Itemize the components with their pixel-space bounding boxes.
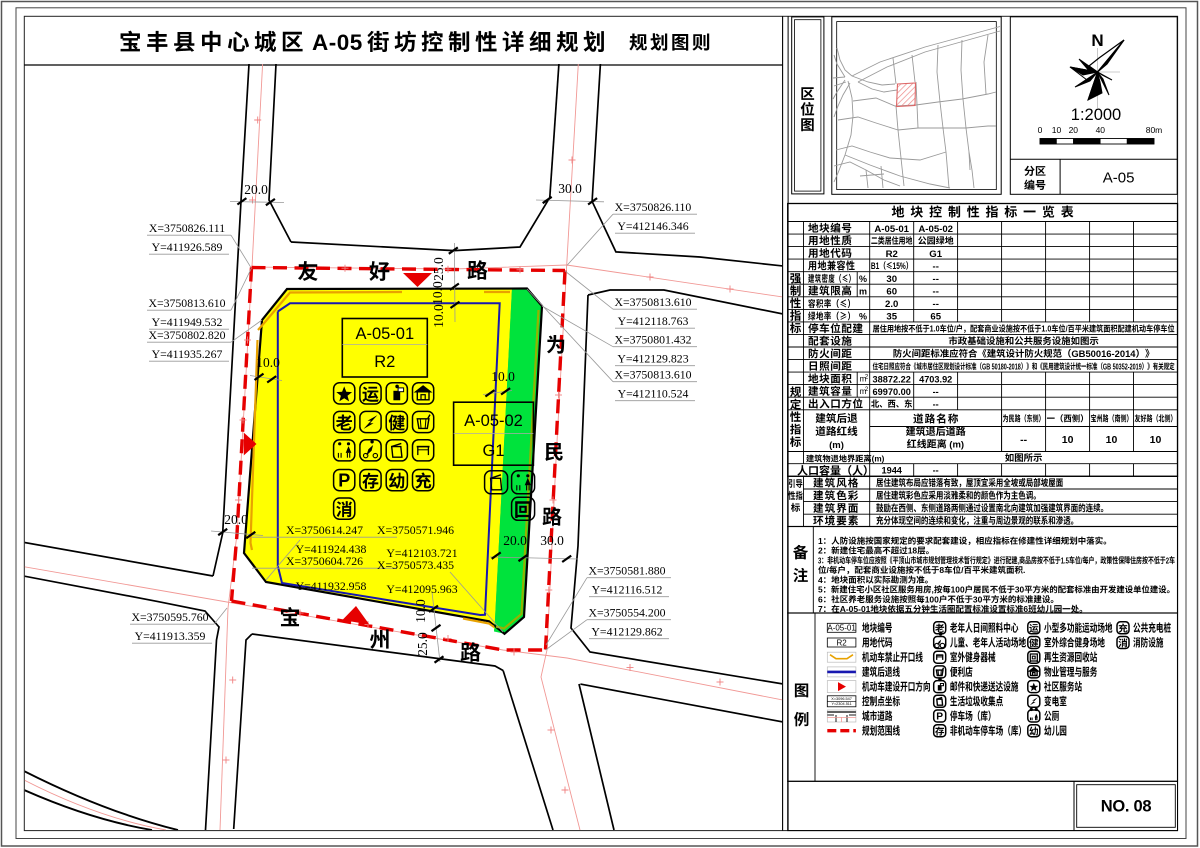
- svg-text:Y=412146.346: Y=412146.346: [617, 219, 688, 233]
- svg-text:20.0: 20.0: [244, 182, 268, 197]
- svg-text:P: P: [338, 471, 350, 491]
- svg-text:2: 2: [1166, 555, 1169, 565]
- svg-text:1:2000: 1:2000: [1071, 106, 1121, 124]
- svg-text:Y=2304.511: Y=2304.511: [831, 702, 851, 706]
- svg-text:25.0: 25.0: [415, 632, 430, 656]
- svg-text:R2: R2: [836, 638, 847, 647]
- svg-text:%: %: [859, 312, 867, 322]
- svg-text:--: --: [933, 466, 939, 476]
- svg-text:(m): (m): [949, 440, 964, 451]
- svg-text:Y=412116.512: Y=412116.512: [592, 583, 663, 597]
- svg-text:X=3750801.432: X=3750801.432: [614, 333, 691, 347]
- svg-text:X=3750813.610: X=3750813.610: [614, 295, 691, 309]
- svg-text:5: 5: [818, 584, 823, 594]
- svg-text:.: .: [1023, 565, 1025, 575]
- svg-text:X=3750802.820: X=3750802.820: [148, 328, 225, 342]
- svg-text:69970.00: 69970.00: [873, 387, 911, 397]
- svg-text:Y=411932.958: Y=411932.958: [296, 579, 367, 593]
- svg-text:10.0: 10.0: [256, 355, 280, 370]
- svg-text:G1: G1: [929, 249, 942, 260]
- svg-text:20: 20: [1069, 125, 1079, 135]
- svg-text:30: 30: [886, 274, 897, 285]
- svg-text:1.0: 1.0: [1041, 324, 1051, 334]
- svg-text:B1: B1: [871, 261, 880, 271]
- svg-text:(m): (m): [872, 455, 885, 464]
- svg-text:25.0: 25.0: [431, 257, 446, 281]
- svg-text:2.0: 2.0: [885, 299, 898, 310]
- svg-text:10.0: 10.0: [431, 304, 446, 328]
- svg-text:40: 40: [1096, 125, 1106, 135]
- svg-text:A-05-01: A-05-01: [874, 224, 909, 235]
- svg-text:--: --: [933, 274, 939, 285]
- svg-text:A-05-02: A-05-02: [464, 412, 523, 430]
- svg-text:30: 30: [1015, 584, 1025, 594]
- svg-text:A-05-02: A-05-02: [918, 224, 953, 235]
- svg-text:A-05-01: A-05-01: [827, 624, 856, 633]
- svg-text:/: /: [1081, 555, 1083, 565]
- svg-text:38872.22: 38872.22: [873, 374, 911, 384]
- svg-text:1: 1: [818, 536, 823, 546]
- svg-text:1944: 1944: [881, 466, 902, 476]
- svg-text:Y=411935.267: Y=411935.267: [152, 347, 223, 361]
- svg-text:X=3750571.946: X=3750571.946: [377, 523, 454, 537]
- svg-text:2: 2: [818, 546, 823, 556]
- svg-text:X=3750826.111: X=3750826.111: [149, 221, 225, 235]
- svg-text:GB50016-2014: GB50016-2014: [1071, 348, 1136, 359]
- svg-text:60: 60: [886, 287, 897, 298]
- svg-text:--: --: [933, 261, 939, 272]
- svg-text:Y=411913.359: Y=411913.359: [135, 629, 206, 643]
- svg-text:--: --: [933, 299, 939, 310]
- svg-text:R2: R2: [374, 353, 395, 371]
- svg-text:A-05-01: A-05-01: [355, 325, 414, 343]
- svg-text:10: 10: [1150, 434, 1162, 446]
- svg-text:3: 3: [818, 555, 821, 565]
- svg-text:20.0: 20.0: [224, 512, 248, 527]
- svg-text:10.0: 10.0: [491, 369, 515, 384]
- svg-text:--: --: [1020, 434, 1027, 446]
- svg-text:10: 10: [1106, 434, 1118, 446]
- svg-text:NO. 08: NO. 08: [1101, 798, 1152, 816]
- svg-text:Y=411926.589: Y=411926.589: [152, 240, 223, 254]
- svg-text:4: 4: [818, 575, 823, 585]
- svg-text:--: --: [933, 387, 939, 397]
- svg-text:Y=412129.862: Y=412129.862: [591, 625, 662, 639]
- svg-text:X=3096.547: X=3096.547: [831, 697, 852, 701]
- svg-text:65: 65: [930, 312, 941, 323]
- svg-text:1.5: 1.5: [1061, 555, 1069, 565]
- svg-text:R2: R2: [886, 249, 898, 260]
- svg-text:--: --: [933, 287, 939, 298]
- svg-text:1.0: 1.0: [930, 324, 940, 334]
- svg-text:,: ,: [1017, 555, 1019, 565]
- svg-text:--: --: [933, 400, 939, 410]
- svg-text:A-05: A-05: [312, 30, 363, 55]
- svg-text:GB 50352-2019: GB 50352-2019: [1103, 363, 1142, 371]
- svg-text:35: 35: [886, 312, 897, 323]
- svg-text:X=3750573.435: X=3750573.435: [377, 558, 454, 572]
- svg-text:A-05: A-05: [1103, 170, 1135, 187]
- svg-text:Y=412095.963: Y=412095.963: [386, 582, 457, 596]
- svg-text:80m: 80m: [1146, 125, 1163, 135]
- svg-text:10.0: 10.0: [413, 599, 428, 623]
- svg-text:X=3750813.610: X=3750813.610: [614, 368, 691, 382]
- svg-text:Y=412118.763: Y=412118.763: [618, 314, 689, 328]
- svg-text:15%: 15%: [893, 261, 906, 271]
- svg-text:Y=412110.524: Y=412110.524: [618, 387, 689, 401]
- svg-text:18: 18: [908, 546, 918, 556]
- svg-text:100: 100: [925, 594, 939, 604]
- svg-text:X=3750581.880: X=3750581.880: [588, 564, 665, 578]
- svg-text:X=3750813.610: X=3750813.610: [148, 296, 225, 310]
- svg-text:G1: G1: [482, 442, 504, 460]
- svg-text:20.0: 20.0: [503, 533, 527, 548]
- svg-text:30.0: 30.0: [540, 533, 564, 548]
- svg-text:m: m: [859, 287, 867, 297]
- svg-text:,: ,: [932, 584, 934, 594]
- svg-text:X=3750826.110: X=3750826.110: [615, 200, 692, 214]
- svg-text:10: 10: [1052, 125, 1062, 135]
- svg-text:GB 50180-2018: GB 50180-2018: [982, 363, 1021, 371]
- svg-text:Y=412129.823: Y=412129.823: [617, 352, 688, 366]
- svg-text:6: 6: [818, 594, 823, 604]
- svg-text:(m): (m): [829, 440, 844, 451]
- svg-text:%: %: [859, 274, 867, 284]
- svg-text:P: P: [936, 712, 943, 723]
- svg-text:100: 100: [951, 584, 965, 594]
- svg-text:30.0: 30.0: [558, 181, 582, 196]
- svg-text:X=3750604.726: X=3750604.726: [286, 554, 363, 568]
- svg-text:8: 8: [939, 565, 944, 575]
- svg-text:0: 0: [1038, 125, 1043, 135]
- svg-text:X=3750614.247: X=3750614.247: [286, 523, 363, 537]
- svg-text:10: 10: [1062, 434, 1074, 446]
- svg-text:Y=411949.532: Y=411949.532: [152, 315, 223, 329]
- svg-text:X=3750554.200: X=3750554.200: [588, 606, 665, 620]
- svg-text:30: 30: [973, 594, 983, 604]
- svg-text:4703.92: 4703.92: [919, 374, 952, 384]
- svg-text:N: N: [1091, 31, 1103, 50]
- svg-text:X=3750595.760: X=3750595.760: [131, 610, 208, 624]
- svg-text:10.0: 10.0: [430, 281, 445, 305]
